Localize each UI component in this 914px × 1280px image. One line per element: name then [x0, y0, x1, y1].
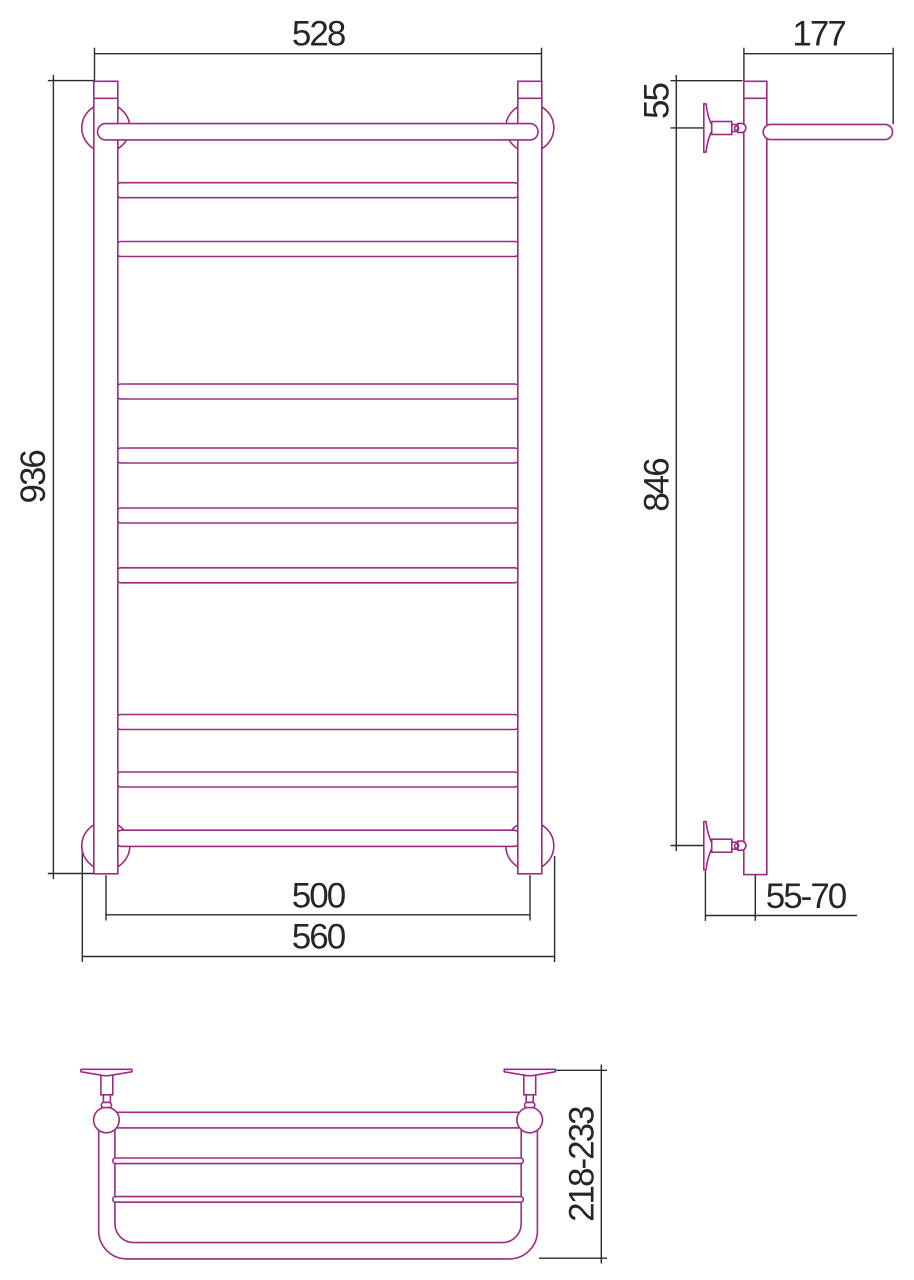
svg-text:846: 846 — [637, 459, 676, 512]
svg-text:500: 500 — [292, 876, 346, 915]
svg-text:55: 55 — [637, 84, 676, 119]
svg-text:560: 560 — [292, 918, 346, 957]
svg-text:218-233: 218-233 — [562, 1107, 601, 1222]
svg-text:528: 528 — [292, 14, 345, 53]
svg-text:177: 177 — [792, 14, 845, 53]
svg-text:55-70: 55-70 — [766, 877, 847, 916]
svg-text:936: 936 — [14, 451, 53, 504]
